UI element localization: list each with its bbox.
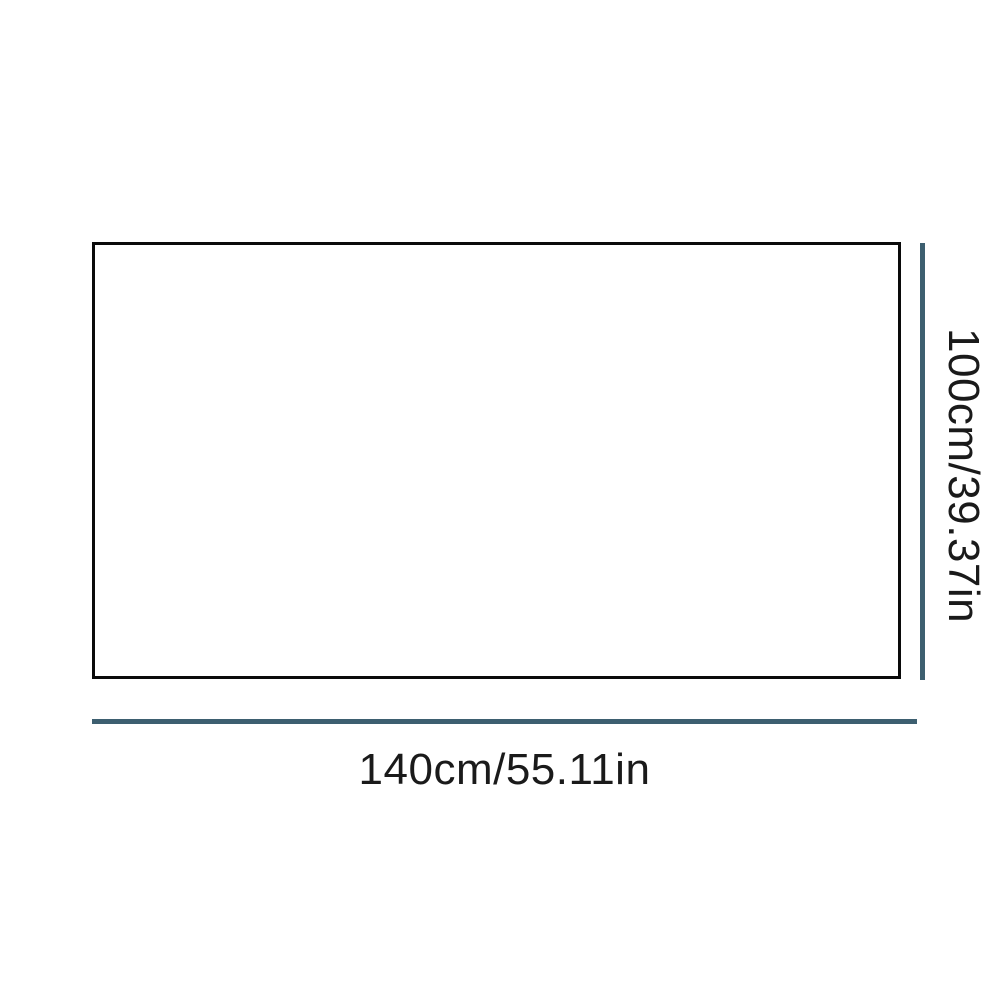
product-outline-rect (92, 242, 901, 679)
height-dimension-line (920, 243, 925, 680)
width-dimension-label: 140cm/55.11in (92, 744, 917, 797)
height-dimension-label: 100cm/39.37in (936, 330, 989, 622)
dimension-diagram: 140cm/55.11in 100cm/39.37in (0, 0, 1001, 1001)
width-dimension-line (92, 719, 917, 724)
